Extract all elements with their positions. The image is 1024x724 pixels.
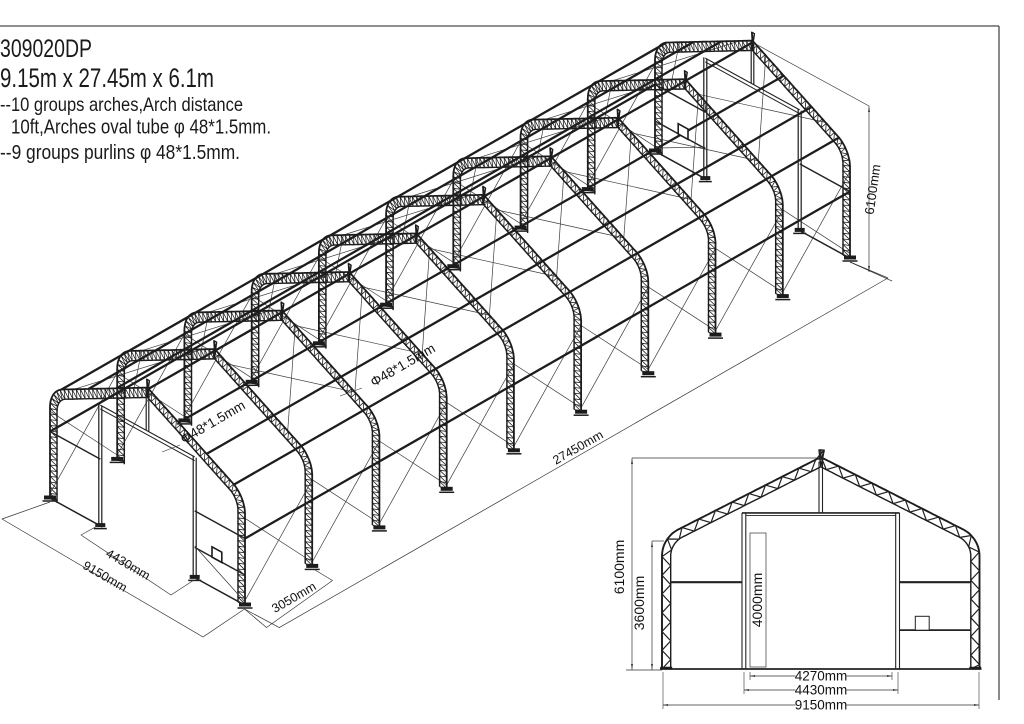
svg-text:309020DP: 309020DP: [0, 35, 92, 63]
svg-text:9150mm: 9150mm: [795, 698, 848, 713]
svg-text:9.15m x 27.45m x 6.1m: 9.15m x 27.45m x 6.1m: [0, 63, 214, 93]
svg-text:--9 groups purlins φ 48*1.5mm.: --9 groups purlins φ 48*1.5mm.: [0, 142, 240, 164]
svg-text:--10 groups arches,Arch distan: --10 groups arches,Arch distance: [0, 94, 243, 116]
svg-text:4270mm: 4270mm: [795, 669, 848, 684]
svg-text:3600mm: 3600mm: [631, 576, 647, 630]
svg-text:10ft,Arches oval tube φ 48*1.5: 10ft,Arches oval tube φ 48*1.5mm.: [11, 117, 271, 139]
svg-text:4000mm: 4000mm: [749, 573, 765, 627]
svg-text:4430mm: 4430mm: [795, 683, 848, 698]
svg-text:6100mm: 6100mm: [611, 540, 627, 594]
